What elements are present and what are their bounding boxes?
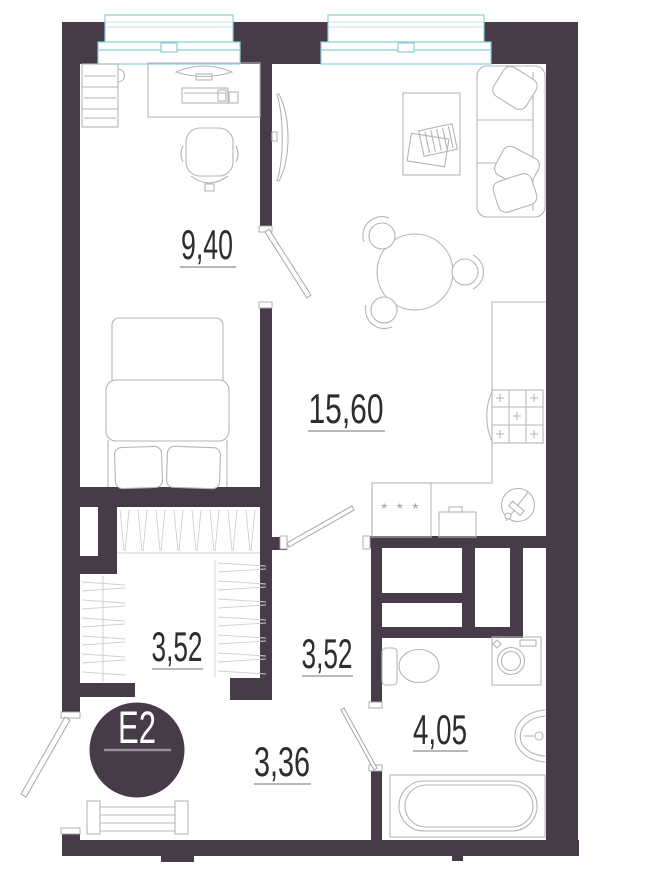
office-chair-icon — [181, 128, 238, 191]
door-corridor — [280, 506, 370, 549]
wardrobe-hatch — [117, 510, 260, 553]
tv-icon — [272, 94, 288, 181]
desk-icon — [148, 63, 260, 117]
fridge-symbol: * * * — [381, 500, 421, 516]
keyboard-icon — [182, 88, 238, 103]
dining-chair-icon — [363, 217, 395, 249]
door-bedroom — [259, 226, 311, 308]
bed-icon — [106, 318, 229, 489]
dining-chair-icon — [365, 297, 397, 329]
kitchen-appliance-icon — [439, 507, 476, 537]
room-label-hallway: 3,36 — [254, 738, 310, 785]
room-label-bathroom: 4,05 — [413, 706, 467, 753]
room-label-living-kitchen: 15,60 — [309, 385, 384, 432]
stove-icon — [487, 390, 543, 443]
shelf-icon — [82, 64, 125, 127]
room-label-wardrobe: 3,52 — [152, 623, 203, 670]
coffee-table-icon — [403, 93, 460, 175]
dining-chair-icon — [452, 255, 484, 289]
window-living-icon — [321, 15, 491, 64]
monitor-icon — [176, 66, 232, 80]
floor-plan: * * * — [0, 0, 649, 874]
pillow-icon — [114, 446, 220, 489]
room-label-bedroom: 9,40 — [181, 221, 233, 268]
window-bedroom-icon — [98, 15, 240, 64]
toilet-icon — [382, 648, 439, 685]
kitchen-sink-icon — [502, 489, 535, 522]
door-entrance — [21, 712, 80, 834]
bathroom-sink-icon — [515, 710, 545, 762]
closet-hatch-right — [215, 560, 266, 677]
unit-badge-label: E2 — [118, 702, 156, 753]
unit-badge: E2 — [90, 702, 185, 798]
room-label-corridor: 3,52 — [302, 630, 353, 677]
washing-machine-icon — [492, 637, 541, 685]
radiator-icon — [87, 801, 188, 834]
floor-plan-page: * * * — [0, 0, 649, 874]
closet-hatch-left — [82, 576, 125, 682]
bathtub-icon — [390, 775, 545, 837]
sofa-icon — [477, 64, 545, 217]
fridge-icon: * * * — [372, 483, 431, 537]
door-bathroom — [341, 702, 382, 771]
